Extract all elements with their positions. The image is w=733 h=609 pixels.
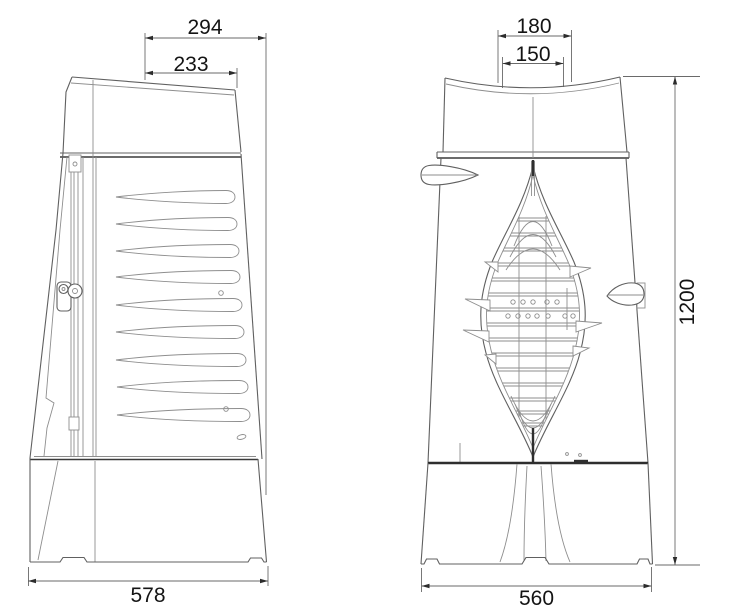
dim-180-arrow-right bbox=[564, 34, 572, 38]
flame-window-top-nested-curve-2 bbox=[510, 235, 556, 258]
flame-window bbox=[463, 160, 602, 462]
dim-294-arrow-right bbox=[258, 36, 266, 40]
perforation bbox=[535, 314, 539, 318]
louver-4 bbox=[116, 271, 240, 284]
dim-150-arrow-right bbox=[556, 61, 564, 65]
flame-window-fins bbox=[463, 262, 602, 364]
flame-window-bottom-nested-curve-1 bbox=[511, 396, 555, 421]
dim-1200-label: 1200 bbox=[676, 279, 699, 326]
perforation bbox=[531, 300, 535, 304]
side-cap-right-edge bbox=[235, 90, 241, 152]
dim-1200: 1200 bbox=[623, 77, 700, 566]
fin-right-1 bbox=[570, 266, 591, 277]
front-base-column-right bbox=[541, 466, 546, 561]
fin-left-4 bbox=[485, 354, 496, 364]
front-cap-left-edge bbox=[443, 78, 445, 152]
latch-pin-outer bbox=[59, 285, 68, 294]
front-base-bottom-edge bbox=[421, 558, 653, 565]
technical-drawing-canvas: 294 233 bbox=[0, 0, 733, 609]
front-view: 180 150 bbox=[421, 15, 700, 609]
perforation bbox=[563, 314, 567, 318]
dim-560-label: 560 bbox=[519, 587, 554, 609]
side-cap-left-edge bbox=[63, 77, 72, 153]
side-cap bbox=[60, 77, 241, 157]
fin-right-2 bbox=[576, 321, 602, 332]
dim-233-arrow-right bbox=[229, 71, 237, 75]
dim-578-arrow-right bbox=[260, 579, 268, 583]
dim-150: 150 bbox=[503, 43, 564, 88]
perforation bbox=[526, 314, 530, 318]
front-base-left-edge bbox=[421, 463, 428, 564]
front-base-marks bbox=[460, 443, 588, 462]
dim-233-label: 233 bbox=[173, 53, 208, 76]
dim-560: 560 bbox=[422, 567, 652, 609]
perforation bbox=[546, 314, 550, 318]
base-dot-2 bbox=[579, 454, 582, 457]
perforation bbox=[521, 300, 525, 304]
dim-560-arrow-right bbox=[644, 584, 652, 588]
front-base-flare-right bbox=[551, 464, 570, 562]
front-body bbox=[428, 158, 648, 463]
perforation bbox=[511, 300, 515, 304]
dim-578-arrow-left bbox=[28, 579, 36, 583]
side-view: 294 233 bbox=[28, 16, 268, 607]
fin-left-1 bbox=[485, 262, 498, 272]
damper-knob-outline bbox=[607, 283, 644, 305]
louver-9 bbox=[117, 409, 250, 422]
dim-1200-arrow-bottom bbox=[673, 557, 677, 565]
perforation bbox=[506, 314, 510, 318]
dim-150-label: 150 bbox=[515, 43, 550, 66]
side-base-right-edge bbox=[258, 459, 267, 562]
side-screw-hole-upper bbox=[219, 291, 224, 296]
front-base-column-left bbox=[524, 466, 527, 561]
louver-3 bbox=[116, 245, 239, 258]
front-base-flare-left bbox=[500, 464, 517, 562]
flame-window-outline-inner bbox=[486, 175, 579, 448]
louver-2 bbox=[116, 218, 237, 231]
damper-knob bbox=[607, 283, 645, 308]
louver-7 bbox=[116, 354, 246, 367]
front-base bbox=[421, 463, 653, 564]
side-base bbox=[30, 457, 267, 563]
dim-294-label: 294 bbox=[187, 16, 222, 39]
fin-right-3 bbox=[573, 346, 589, 356]
dim-1200-arrow-top bbox=[673, 77, 677, 85]
side-cap-top-edge bbox=[72, 77, 235, 90]
side-body-rear-edge bbox=[241, 154, 262, 459]
dim-294-arrow-left bbox=[145, 36, 153, 40]
dim-233-arrow-left bbox=[145, 71, 153, 75]
front-body-left-edge bbox=[428, 158, 441, 463]
louver-8 bbox=[117, 381, 248, 394]
dim-560-arrow-left bbox=[422, 584, 430, 588]
side-oval-hole bbox=[237, 434, 247, 441]
flame-window-perforations-row-2 bbox=[506, 314, 575, 318]
dim-578: 578 bbox=[28, 566, 268, 607]
side-cap-top-inner-edge bbox=[71, 83, 234, 95]
fin-left-3 bbox=[463, 330, 489, 342]
flame-window-perforations-row-1 bbox=[511, 300, 559, 304]
perforation bbox=[555, 300, 559, 304]
hinge-bottom-block bbox=[69, 417, 79, 430]
dim-150-arrow-left bbox=[503, 61, 511, 65]
front-cap-right-edge bbox=[620, 77, 627, 152]
flame-window-outline-outer bbox=[481, 166, 585, 457]
louver-5 bbox=[116, 299, 242, 312]
perforation bbox=[571, 314, 575, 318]
front-cap-top-curve-inner bbox=[446, 83, 619, 94]
door-louvers bbox=[116, 191, 250, 422]
dim-578-label: 578 bbox=[130, 584, 165, 607]
side-base-front-slant bbox=[38, 461, 58, 560]
stove-two-view-technical-drawing: 294 233 bbox=[0, 0, 733, 609]
front-cap-top-curve-outer bbox=[445, 77, 620, 88]
base-dot-1 bbox=[566, 453, 569, 456]
perforation bbox=[516, 314, 520, 318]
front-body-right-edge bbox=[626, 158, 648, 463]
louver-1 bbox=[116, 191, 235, 204]
dim-180-arrow-left bbox=[498, 34, 506, 38]
dim-233: 233 bbox=[145, 53, 237, 88]
flame-window-top-nested-curve-3 bbox=[506, 249, 560, 270]
front-base-right-edge bbox=[648, 463, 653, 564]
door-handle bbox=[421, 165, 478, 185]
dim-180-label: 180 bbox=[516, 15, 551, 38]
fin-left-2 bbox=[465, 299, 490, 311]
side-base-bottom-edge bbox=[30, 558, 267, 563]
hinge-top-block bbox=[69, 155, 81, 172]
front-cap bbox=[437, 77, 629, 158]
perforation bbox=[545, 300, 549, 304]
louver-6 bbox=[116, 326, 244, 339]
latch-knob-outer bbox=[68, 284, 82, 298]
